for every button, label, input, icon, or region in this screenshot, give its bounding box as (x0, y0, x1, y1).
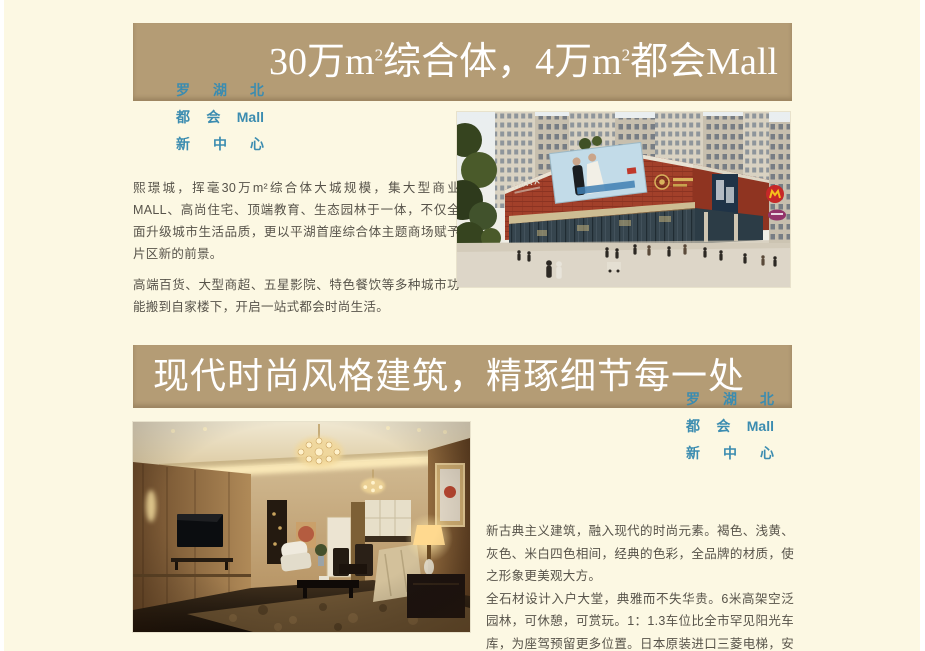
tagline-char: 都 (176, 107, 190, 127)
design-copy: 新古典主义建筑，融入现代的时尚元素。褐色、浅黄、灰色、米白四色相间，经典的色彩，… (486, 520, 794, 651)
location-tagline-bottom: 罗湖北 都会Mall 新中心 (686, 385, 774, 466)
tagline-char: 中 (723, 443, 737, 463)
mall-paragraph-1: 熙璟城，挥毫30万m²综合体大城规模，集大型商业MALL、高尚住宅、顶端教育、生… (133, 177, 460, 265)
tagline-char: 罗 (686, 389, 700, 409)
interior-rendering-image (133, 422, 470, 632)
tagline-char: Mall (747, 418, 774, 434)
tagline-char: 心 (760, 443, 774, 463)
tagline-line: 都会Mall (176, 103, 264, 130)
billboard (549, 142, 646, 203)
mall-title-part: 都会Mall (630, 41, 778, 83)
tagline-char: 北 (760, 389, 774, 409)
tagline-char: Mall (237, 109, 264, 125)
tagline-line: 都会Mall (686, 412, 774, 439)
mall-title-superscript: 2 (622, 45, 631, 64)
design-paragraph-1: 新古典主义建筑，融入现代的时尚元素。褐色、浅黄、灰色、米白四色相间，经典的色彩，… (486, 520, 794, 588)
tagline-line: 罗湖北 (686, 385, 774, 412)
mall-rendering-image: IMAX (457, 112, 790, 287)
tagline-char: 湖 (723, 389, 737, 409)
tagline-line: 新中心 (686, 439, 774, 466)
mall-title-part: 综合体，4万m (383, 41, 622, 83)
tagline-char: 新 (686, 443, 700, 463)
tagline-char: 会 (716, 416, 730, 436)
brochure-page: 30万m2综合体，4万m2都会Mall 罗湖北 都会Mall 新中心 熙璟城，挥… (0, 0, 925, 651)
mall-title-superscript: 2 (375, 45, 384, 64)
mall-paragraph-2: 高端百货、大型商超、五星影院、特色餐饮等多种城市功能搬到自家楼下，开启一站式都会… (133, 274, 460, 318)
tagline-char: 心 (250, 134, 264, 154)
tagline-char: 北 (250, 80, 264, 100)
mall-copy: 熙璟城，挥毫30万m²综合体大城规模，集大型商业MALL、高尚住宅、顶端教育、生… (133, 177, 460, 318)
mall-illustration: IMAX (457, 112, 790, 287)
design-paragraph-2: 全石材设计入户大堂，典雅而不失华贵。6米高架空泛园林，可休憩，可赏玩。1：1.3… (486, 588, 794, 651)
tagline-char: 新 (176, 134, 190, 154)
mall-title-part: 30万m (269, 41, 375, 83)
tagline-char: 中 (213, 134, 227, 154)
tagline-char: 会 (206, 107, 220, 127)
vignette (133, 422, 470, 632)
tagline-line: 罗湖北 (176, 76, 264, 103)
tagline-char: 罗 (176, 80, 190, 100)
tagline-char: 湖 (213, 80, 227, 100)
tagline-line: 新中心 (176, 130, 264, 157)
interior-illustration (133, 422, 470, 632)
location-tagline-top: 罗湖北 都会Mall 新中心 (176, 76, 264, 157)
tagline-char: 都 (686, 416, 700, 436)
